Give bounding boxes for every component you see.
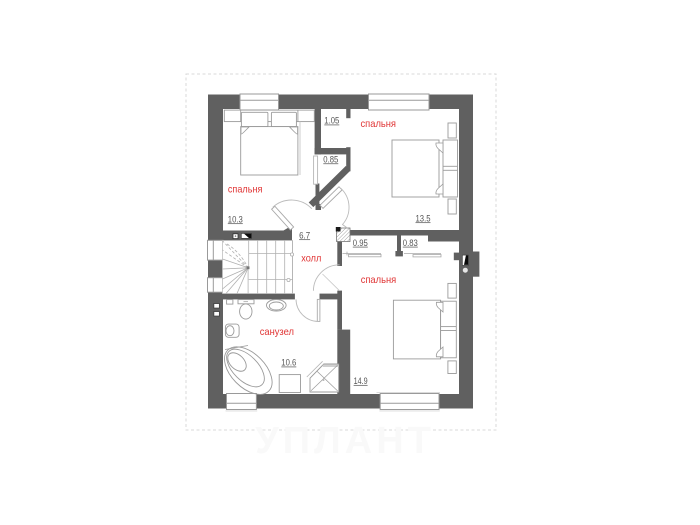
svg-text:холл: холл <box>301 252 321 264</box>
svg-text:санузел: санузел <box>260 326 294 338</box>
svg-text:спальня: спальня <box>361 118 397 130</box>
svg-text:спальня: спальня <box>361 274 397 286</box>
svg-text:УПЛАНТ: УПЛАНТ <box>255 420 435 462</box>
svg-text:спальня: спальня <box>228 183 263 195</box>
